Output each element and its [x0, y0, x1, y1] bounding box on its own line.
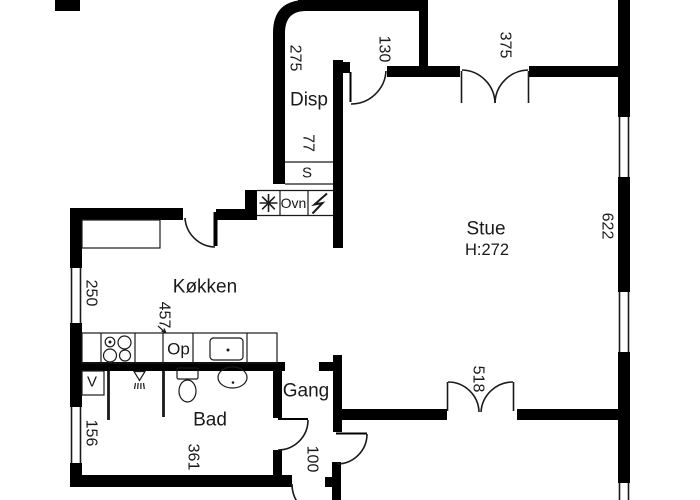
- wall-disp-right: [333, 60, 343, 248]
- wall-koekken-north: [70, 208, 183, 220]
- floor-plan: Disp Stue H:272 Køkken Gang Bad S V Ovn …: [0, 0, 700, 500]
- wall-gang-top-stub: [319, 362, 333, 371]
- stove-asterisk-icon: [260, 194, 278, 212]
- kitchen-sink: [210, 338, 243, 360]
- dim-250: 250: [83, 280, 100, 307]
- label-appliance-op: Op: [167, 340, 190, 359]
- door-gang-southeast: [336, 434, 367, 465]
- wall-top-room-divider: [419, 0, 428, 68]
- toilet: [177, 368, 198, 402]
- wall-koekken-riser: [245, 190, 257, 210]
- walls: [55, 0, 630, 500]
- dim-275: 275: [287, 45, 304, 72]
- wall-bad-gang-upper: [273, 371, 282, 418]
- wall-top: [298, 0, 428, 11]
- wall-stue-top-right: [529, 66, 618, 77]
- shower-icon: [134, 372, 145, 390]
- label-room-gang: Gang: [283, 381, 329, 402]
- wall-gang-right: [333, 355, 342, 432]
- wall-curved-corner: [273, 0, 306, 46]
- wall-130-jamb-stub: [333, 62, 350, 73]
- windows: [72, 117, 629, 500]
- door-koekken: [185, 212, 218, 247]
- label-appliance-ovn: Ovn: [281, 195, 307, 211]
- wall-bottom: [70, 475, 292, 487]
- wall-right-c: [618, 352, 630, 483]
- wall-518-left: [333, 409, 447, 420]
- cooktop: [104, 336, 132, 362]
- label-room-stue: Stue: [466, 219, 505, 240]
- label-room-disp: Disp: [290, 90, 328, 111]
- wall-top-left-stub: [55, 0, 80, 11]
- wall-left-a: [70, 208, 82, 268]
- window-right-bottom: [620, 483, 629, 500]
- label-room-bad: Bad: [193, 410, 227, 431]
- label-stue-height: H:272: [465, 241, 509, 259]
- window-right-top: [620, 117, 629, 177]
- dim-375: 375: [497, 32, 514, 59]
- wall-right-b: [618, 177, 630, 292]
- wall-bottom-vertical: [332, 462, 341, 500]
- label-closet-v: V: [87, 374, 97, 391]
- dim-100: 100: [304, 446, 321, 473]
- dim-156: 156: [83, 420, 100, 447]
- dim-77: 77: [300, 134, 317, 152]
- floor-plan-drawing: Disp Stue H:272 Køkken Gang Bad S V Ovn …: [0, 0, 700, 500]
- lightning-icon: [313, 194, 328, 214]
- dim-130: 130: [376, 36, 393, 63]
- door-double-375: [462, 70, 529, 103]
- door-bad: [278, 419, 308, 450]
- window-left-250: [72, 268, 81, 323]
- dim-361: 361: [185, 444, 202, 471]
- wall-disp-left: [273, 44, 285, 184]
- wardrobe: [82, 220, 160, 248]
- door-entry-100: [292, 484, 325, 500]
- dim-457: 457: [156, 302, 173, 329]
- wall-stue-top-left: [387, 66, 460, 77]
- wall-right-a: [618, 0, 630, 117]
- window-right-middle: [620, 292, 629, 352]
- label-closet-s: S: [302, 165, 312, 182]
- dim-622: 622: [599, 213, 616, 240]
- wall-koekken-north-right: [216, 209, 257, 220]
- wall-518-right: [517, 409, 618, 420]
- door-130: [351, 71, 387, 104]
- window-left-156: [72, 407, 81, 463]
- label-room-koekken: Køkken: [173, 277, 237, 298]
- dim-518: 518: [470, 366, 487, 393]
- wall-bottom-door-jamb: [325, 477, 333, 487]
